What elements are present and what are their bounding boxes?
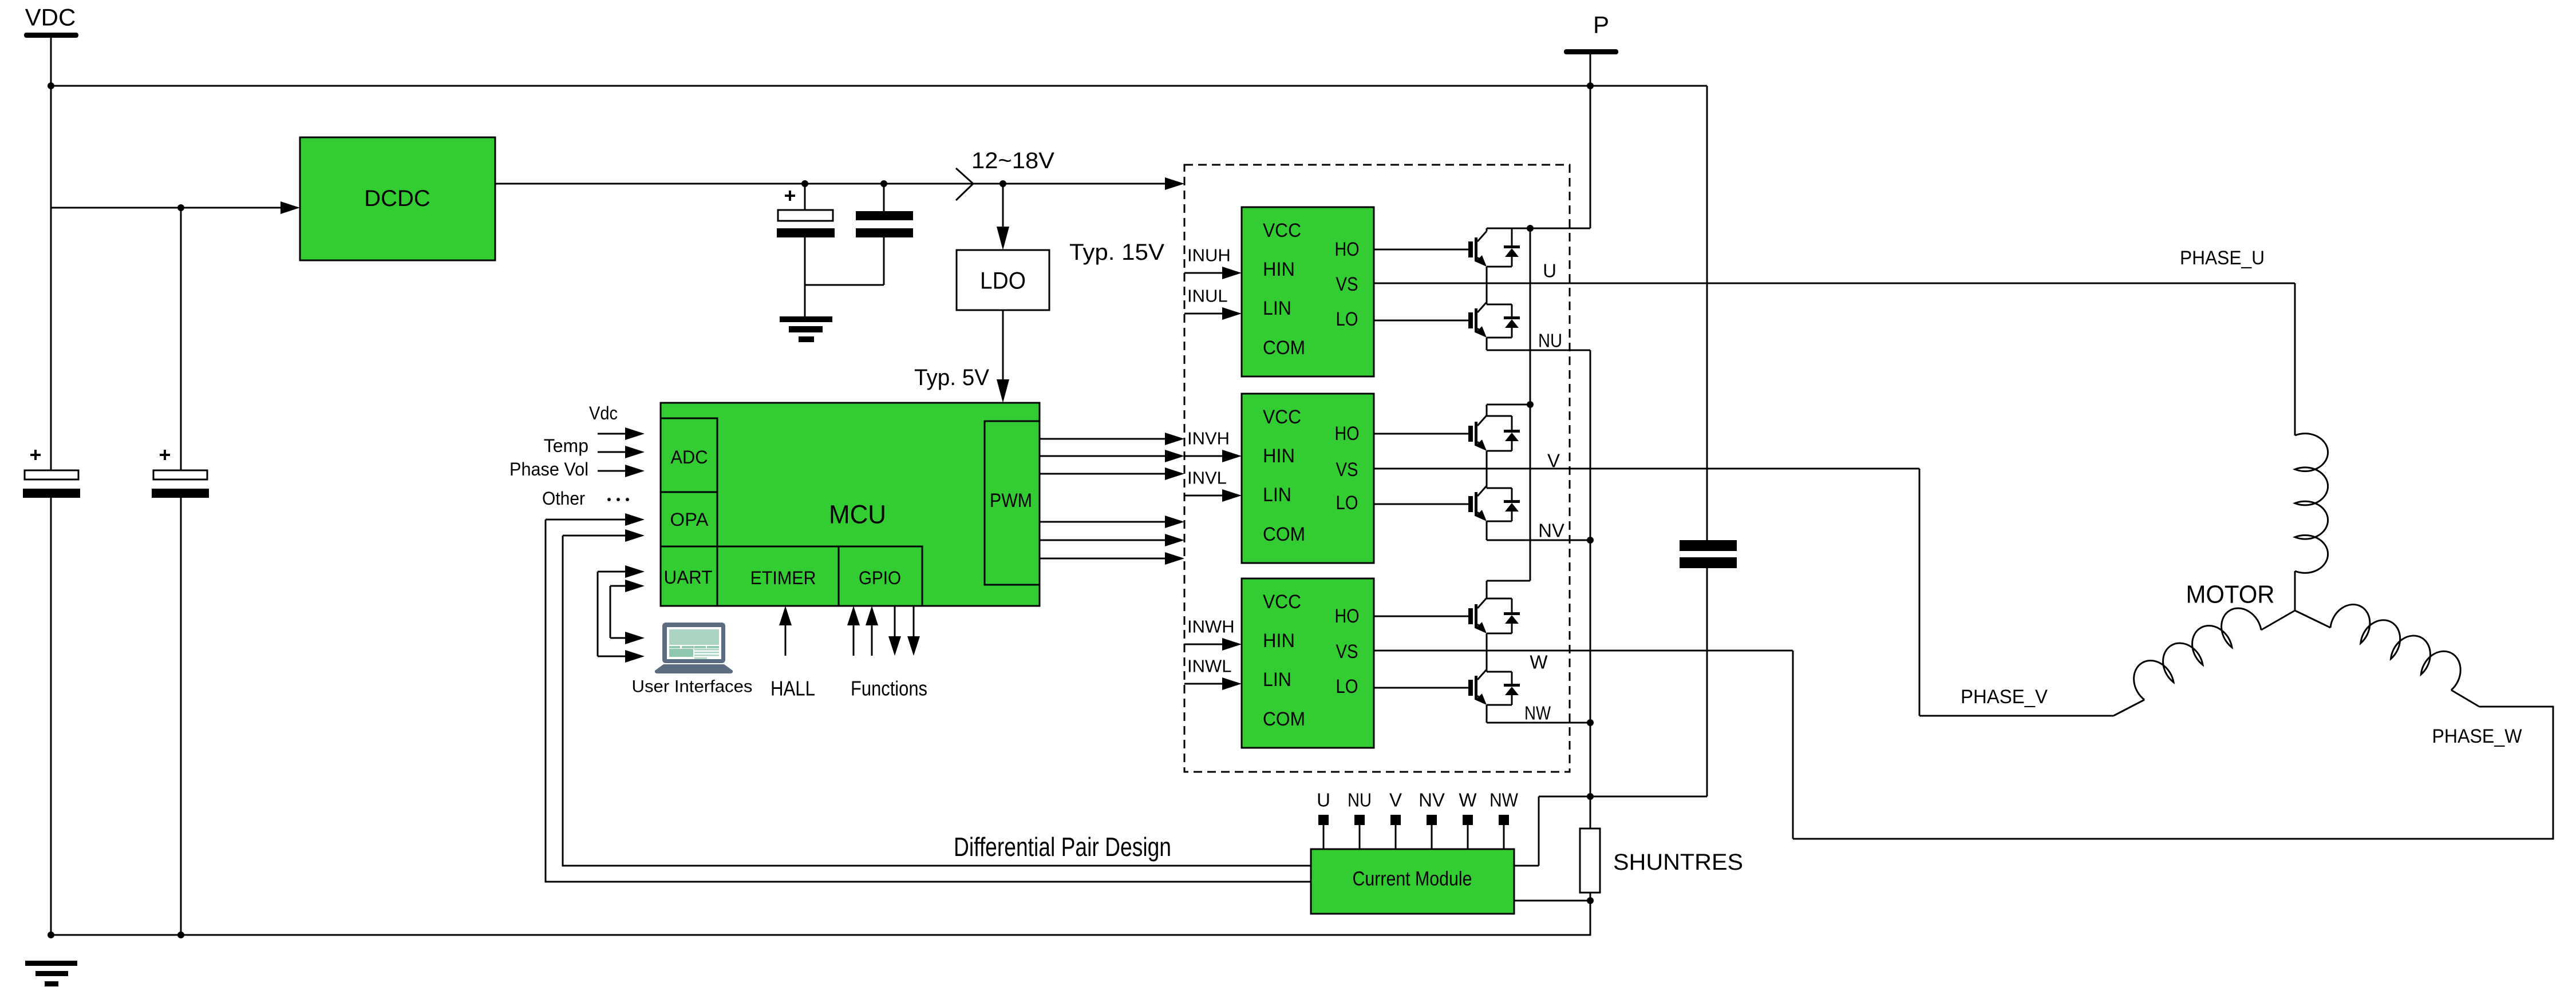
svg-text:COM: COM <box>1263 708 1305 730</box>
svg-text:LO: LO <box>1336 492 1358 514</box>
svg-text:INVL: INVL <box>1187 468 1227 488</box>
svg-text:OPA: OPA <box>670 509 709 530</box>
svg-text:U: U <box>1543 260 1556 282</box>
svg-text:ADC: ADC <box>671 447 708 467</box>
svg-text:U: U <box>1317 790 1330 811</box>
svg-text:NU: NU <box>1348 790 1372 811</box>
svg-text:Other: Other <box>542 488 585 509</box>
svg-text:Phase Vol: Phase Vol <box>509 459 588 479</box>
svg-text:W: W <box>1459 790 1477 811</box>
svg-text:LIN: LIN <box>1263 484 1291 506</box>
svg-text:LO: LO <box>1336 676 1358 697</box>
svg-text:HIN: HIN <box>1263 259 1295 280</box>
svg-text:LDO: LDO <box>980 267 1026 294</box>
svg-text:SHUNTRES: SHUNTRES <box>1613 850 1743 875</box>
svg-text:NW: NW <box>1524 703 1551 724</box>
svg-text:P: P <box>1593 11 1609 38</box>
svg-text:HIN: HIN <box>1263 630 1295 652</box>
svg-text:INUL: INUL <box>1187 286 1228 306</box>
svg-text:LO: LO <box>1336 308 1358 330</box>
svg-text:PWM: PWM <box>990 490 1032 512</box>
svg-text:Temp: Temp <box>544 435 588 456</box>
svg-text:Vdc: Vdc <box>589 403 618 423</box>
svg-text:12~18V: 12~18V <box>971 148 1054 173</box>
svg-text:GPIO: GPIO <box>859 568 901 588</box>
svg-text:COM: COM <box>1263 337 1305 359</box>
svg-text:HO: HO <box>1335 605 1360 627</box>
svg-text:INWH: INWH <box>1187 617 1235 637</box>
svg-text:Typ. 15V: Typ. 15V <box>1069 240 1164 265</box>
svg-text:LIN: LIN <box>1263 669 1291 691</box>
svg-text:User Interfaces: User Interfaces <box>632 677 753 696</box>
svg-text:INWL: INWL <box>1187 656 1232 676</box>
svg-text:Differential Pair Design: Differential Pair Design <box>954 832 1171 862</box>
svg-text:HIN: HIN <box>1263 445 1295 467</box>
svg-text:VDC: VDC <box>25 4 76 31</box>
svg-text:UART: UART <box>664 567 713 588</box>
svg-text:VCC: VCC <box>1263 406 1301 428</box>
svg-text:W: W <box>1530 652 1548 673</box>
svg-text:Current Module: Current Module <box>1353 868 1472 890</box>
svg-text:COM: COM <box>1263 524 1305 545</box>
svg-text:PHASE_W: PHASE_W <box>2432 726 2522 747</box>
svg-text:INUH: INUH <box>1187 245 1231 265</box>
svg-text:NV: NV <box>1538 520 1564 541</box>
svg-text:PHASE_V: PHASE_V <box>1961 686 2048 708</box>
svg-text:Typ. 5V: Typ. 5V <box>914 365 989 390</box>
svg-text:HO: HO <box>1335 423 1360 445</box>
svg-text:MOTOR: MOTOR <box>2186 581 2275 609</box>
svg-text:VCC: VCC <box>1263 220 1301 241</box>
svg-text:INVH: INVH <box>1187 429 1230 449</box>
svg-text:NU: NU <box>1538 330 1562 351</box>
svg-text:VS: VS <box>1336 641 1358 663</box>
svg-text:DCDC: DCDC <box>364 186 430 211</box>
svg-text:ETIMER: ETIMER <box>750 568 816 588</box>
svg-text:PHASE_U: PHASE_U <box>2180 247 2265 269</box>
svg-text:VS: VS <box>1336 459 1358 481</box>
svg-text:NV: NV <box>1419 790 1445 811</box>
svg-text:V: V <box>1389 790 1402 811</box>
svg-text:HALL: HALL <box>771 677 815 700</box>
svg-text:VS: VS <box>1336 273 1358 295</box>
svg-text:Functions: Functions <box>851 677 927 700</box>
svg-text:HO: HO <box>1335 239 1360 260</box>
svg-text:MCU: MCU <box>829 500 886 529</box>
svg-text:LIN: LIN <box>1263 298 1291 319</box>
svg-text:NW: NW <box>1490 790 1519 811</box>
svg-text:VCC: VCC <box>1263 591 1301 613</box>
